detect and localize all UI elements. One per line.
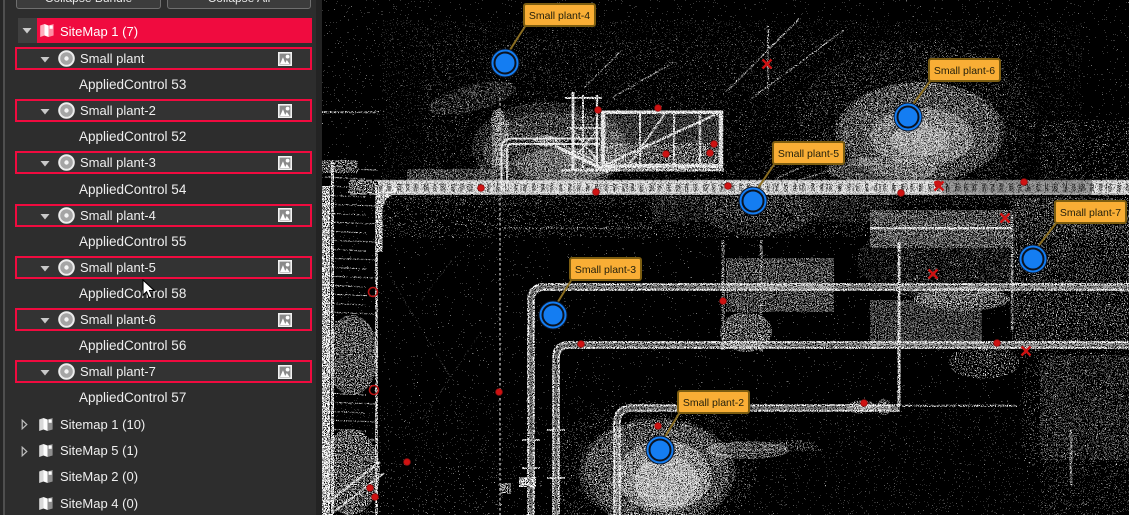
svg-text:Small plant-2: Small plant-2 (683, 397, 744, 409)
svg-text:Small plant-6: Small plant-6 (934, 65, 995, 77)
svg-text:Small plant-7: Small plant-7 (1060, 207, 1121, 219)
svg-text:Small plant-3: Small plant-3 (575, 264, 636, 276)
svg-text:Small plant-5: Small plant-5 (778, 148, 839, 160)
svg-text:Small plant-4: Small plant-4 (529, 10, 590, 22)
